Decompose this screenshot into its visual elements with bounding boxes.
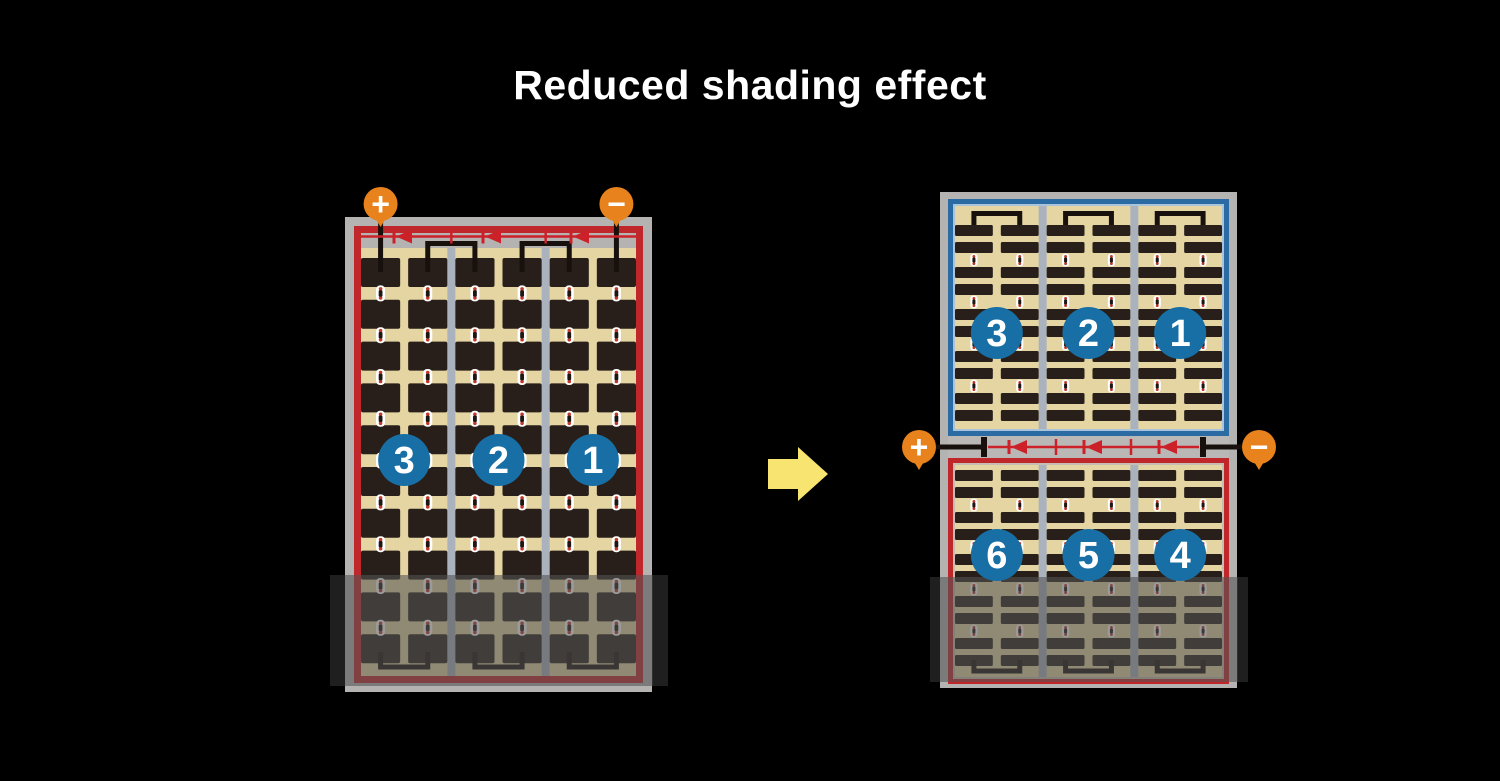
string-number-label: 1 <box>1170 313 1191 355</box>
right-module: 321+−654 <box>902 192 1276 688</box>
string-number-badge: 3 <box>378 434 430 486</box>
string-number-badge: 6 <box>971 529 1023 581</box>
string-number-label: 1 <box>582 440 603 482</box>
diode-busbar <box>936 436 1243 458</box>
negative-terminal-label: − <box>1250 429 1269 465</box>
string-number-badge: 4 <box>1154 529 1206 581</box>
right-module-top-half: 321 <box>948 199 1229 436</box>
string-number-badge: 5 <box>1063 529 1115 581</box>
negative-terminal-icon: − <box>1242 429 1276 470</box>
string-number-label: 3 <box>986 313 1007 355</box>
positive-terminal-label: + <box>910 429 929 465</box>
string-number-badge: 2 <box>1063 307 1115 359</box>
string-number-badge: 3 <box>971 307 1023 359</box>
transition-arrow-icon <box>768 447 828 501</box>
string-number-label: 3 <box>394 440 415 482</box>
positive-terminal-icon: + <box>902 429 936 470</box>
string-number-label: 2 <box>488 440 509 482</box>
string-number-label: 2 <box>1078 313 1099 355</box>
negative-terminal-label: − <box>607 186 626 222</box>
shade-overlay <box>330 575 668 686</box>
positive-terminal-label: + <box>371 186 390 222</box>
string-number-label: 5 <box>1078 535 1099 577</box>
string-number-badge: 2 <box>473 434 525 486</box>
string-number-badge: 1 <box>567 434 619 486</box>
string-number-badge: 1 <box>1154 307 1206 359</box>
string-number-label: 4 <box>1170 535 1191 577</box>
string-number-label: 6 <box>986 535 1007 577</box>
shading-effect-diagram: +−321321+−654 <box>0 0 1500 781</box>
diagram-stage: Reduced shading effect +−321321+−654 <box>0 0 1500 781</box>
left-module: +−321 <box>330 186 668 692</box>
shade-overlay <box>930 577 1248 682</box>
